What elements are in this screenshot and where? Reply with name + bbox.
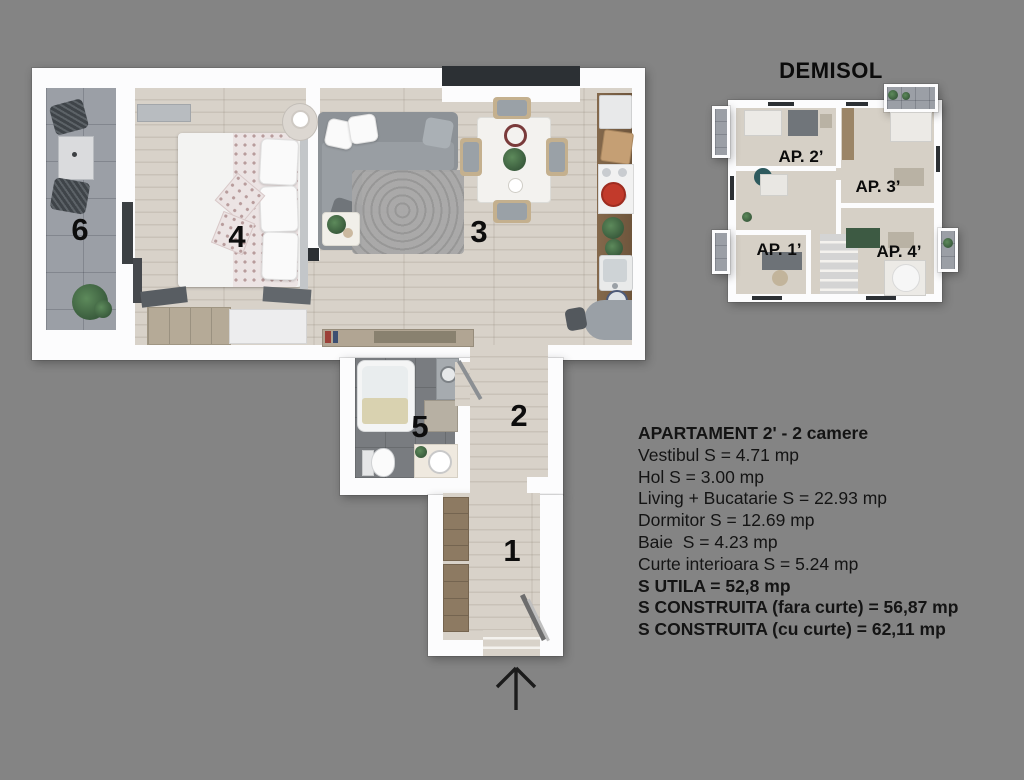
courtyard-door-frame — [122, 202, 133, 264]
bed-pillow — [259, 185, 299, 232]
floor-plan-canvas: 6 4 3 5 2 1 DEMISOL — [0, 0, 1024, 780]
bed-headboard — [300, 131, 308, 289]
demisol-plant — [902, 92, 910, 100]
living-window — [442, 66, 580, 86]
bathtub-mat — [362, 398, 408, 424]
demisol-plant — [943, 238, 953, 248]
hall-step-wall — [527, 477, 563, 493]
nightstand-lamp — [291, 110, 310, 129]
demisol-duvet — [892, 264, 920, 292]
info-line-construita-fara: S CONSTRUITA (fara curte) = 56,87 mp — [638, 597, 958, 619]
desk — [584, 300, 632, 340]
dining-wreath — [504, 124, 527, 147]
demisol-bed — [744, 110, 782, 136]
demisol-window — [752, 296, 782, 300]
console-book — [325, 331, 331, 343]
demisol-window — [730, 176, 734, 200]
demisol-wall — [836, 108, 841, 168]
dresser — [147, 307, 231, 345]
demisol-balcony-floor — [941, 231, 955, 269]
info-line-vestibul: Vestibul S = 4.71 mp — [638, 445, 958, 467]
demisol-window — [846, 102, 868, 106]
stove-pot — [601, 182, 626, 207]
stove-burner — [602, 168, 611, 177]
dining-chair-seat — [497, 100, 527, 116]
dining-chair-seat — [549, 142, 565, 172]
tv-console-center — [374, 331, 456, 343]
console-book — [333, 331, 338, 343]
bed-pillow — [261, 231, 299, 280]
bedroom-door-frame — [307, 248, 319, 261]
bed-pillow — [259, 138, 299, 186]
cutting-board — [600, 129, 634, 165]
demisol-green-sofa — [846, 228, 880, 248]
info-line-hol: Hol S = 3.00 mp — [638, 467, 958, 489]
demisol-sofa — [788, 110, 818, 136]
dining-plate — [508, 178, 523, 193]
info-line-curte: Curte interioara S = 5.24 mp — [638, 554, 958, 576]
demisol-label-ap3: AP. 3’ — [855, 177, 900, 197]
room-label-5: 5 — [411, 409, 428, 445]
demisol-bed — [890, 112, 932, 142]
bathroom-shelf — [424, 400, 458, 432]
stove-burner — [618, 168, 627, 177]
sofa-gray-pillow — [422, 117, 454, 149]
bathroom-plant — [415, 446, 427, 458]
demisol-wall — [841, 203, 934, 208]
room-label-4: 4 — [228, 219, 245, 255]
toilet-bowl — [371, 448, 395, 477]
courtyard-chair — [49, 177, 90, 215]
info-line-utila: S UTILA = 52,8 mp — [638, 576, 958, 598]
demisol-window — [866, 296, 896, 300]
coffee-table-deco — [343, 228, 353, 238]
dining-chair-seat — [463, 142, 479, 172]
demisol-kitchen — [842, 108, 854, 160]
demisol-table — [820, 114, 832, 128]
courtyard-plant-small — [94, 300, 112, 318]
fridge — [599, 95, 632, 129]
demisol-rug — [772, 270, 788, 286]
info-line-construita-cu: S CONSTRUITA (cu curte) = 62,11 mp — [638, 619, 958, 641]
dining-plant — [503, 148, 526, 171]
room-label-3: 3 — [470, 214, 487, 250]
demisol-wall — [806, 230, 811, 294]
info-line-dormitor: Dormitor S = 12.69 mp — [638, 510, 958, 532]
sofa-pillow — [347, 113, 379, 145]
entrance-arrow-icon — [488, 660, 544, 714]
demisol-inset: DEMISOL — [700, 40, 1024, 330]
apartment-plan: 6 4 3 5 2 1 — [0, 0, 700, 780]
demisol-balcony-floor — [715, 233, 727, 271]
kitchen-plant — [602, 217, 624, 239]
info-line-baie: Baie S = 4.23 mp — [638, 532, 958, 554]
apartment-info: APARTAMENT 2' - 2 camere Vestibul S = 4.… — [638, 423, 958, 641]
info-line-living: Living + Bucatarie S = 22.93 mp — [638, 488, 958, 510]
demisol-label-ap4: AP. 4’ — [876, 242, 921, 262]
dresser-white-unit — [229, 309, 307, 344]
demisol-label-ap1: AP. 1’ — [756, 240, 801, 260]
demisol-window — [936, 146, 940, 172]
wardrobe — [443, 497, 469, 561]
demisol-window — [768, 102, 794, 106]
demisol-wall — [736, 230, 806, 235]
demisol-title: DEMISOL — [779, 58, 883, 84]
room-label-1: 1 — [503, 533, 520, 569]
bedroom-closet — [137, 104, 191, 122]
kitchen-sink-bowl — [603, 259, 627, 282]
demisol-label-ap2: AP. 2’ — [778, 147, 823, 167]
room-label-2: 2 — [510, 398, 527, 434]
kitchen-faucet — [612, 283, 618, 289]
courtyard-table-knob — [72, 152, 77, 157]
living-rug — [352, 170, 464, 254]
demisol-plant — [742, 212, 752, 222]
room-label-6: 6 — [71, 212, 88, 248]
courtyard-table — [58, 136, 94, 180]
dining-chair-seat — [497, 203, 527, 220]
desk-chair — [564, 306, 588, 331]
demisol-bed-small — [760, 174, 788, 196]
demisol-plant — [888, 90, 898, 100]
vanity-sink — [428, 450, 452, 474]
apartment-info-title: APARTAMENT 2' - 2 camere — [638, 423, 958, 445]
entry-steps — [483, 630, 540, 656]
demisol-balcony-floor — [715, 109, 727, 155]
wardrobe — [443, 564, 469, 632]
hall-floor — [470, 345, 548, 493]
